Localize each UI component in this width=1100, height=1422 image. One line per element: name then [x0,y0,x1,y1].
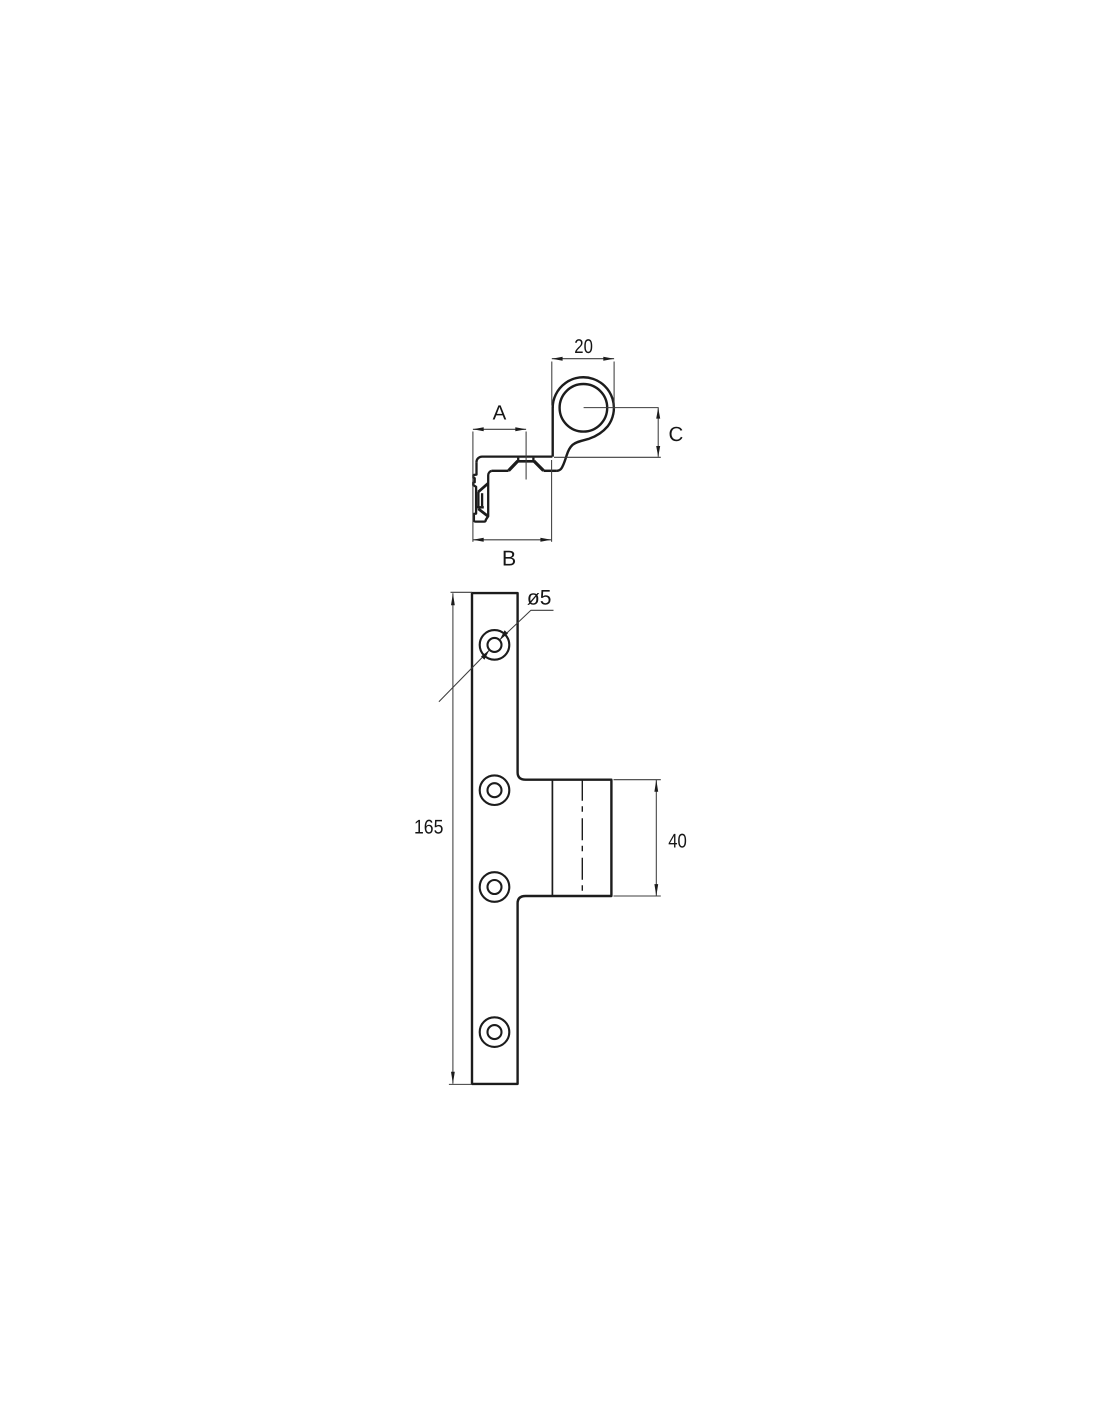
svg-text:C: C [669,423,684,446]
svg-text:B: B [502,546,516,570]
svg-text:A: A [493,401,507,424]
svg-text:165: 165 [414,817,443,839]
svg-text:40: 40 [668,830,687,852]
svg-text:ø5: ø5 [527,587,552,610]
svg-text:20: 20 [574,336,593,358]
